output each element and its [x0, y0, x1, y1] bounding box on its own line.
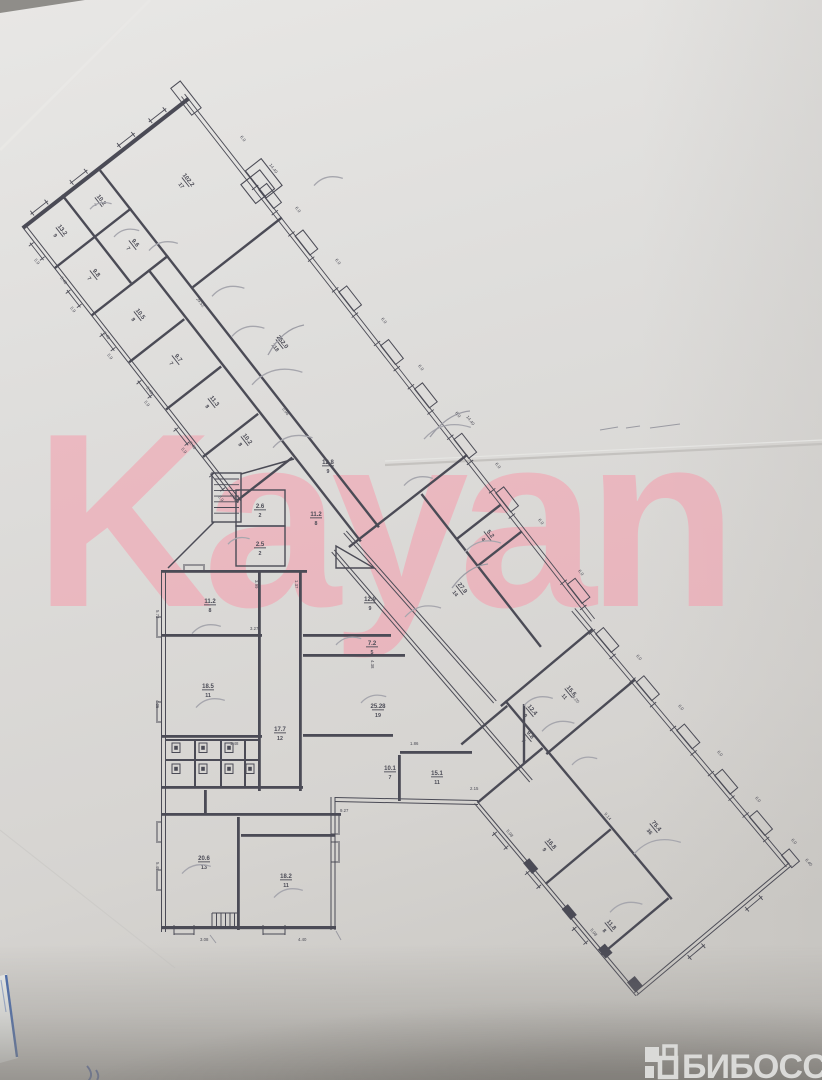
svg-text:1.86: 1.86	[410, 741, 419, 746]
svg-text:12: 12	[277, 736, 283, 742]
svg-text:17.7: 17.7	[274, 727, 286, 733]
svg-text:8: 8	[315, 521, 318, 527]
svg-text:1.37: 1.37	[294, 580, 299, 589]
svg-text:9: 9	[369, 606, 372, 612]
svg-text:11.2: 11.2	[310, 512, 322, 518]
svg-text:5.73: 5.73	[155, 610, 160, 619]
svg-text:Kayan: Kayan	[34, 381, 738, 659]
svg-text:1.48: 1.48	[230, 741, 239, 746]
svg-text:4.38: 4.38	[370, 660, 375, 669]
svg-text:9: 9	[327, 469, 330, 475]
svg-text:2: 2	[259, 513, 262, 519]
svg-text:2.15: 2.15	[470, 786, 479, 791]
svg-text:5: 5	[371, 650, 374, 656]
svg-text:2: 2	[259, 551, 262, 557]
svg-text:5.48: 5.48	[155, 862, 160, 871]
svg-text:3.27: 3.27	[250, 626, 259, 631]
svg-text:9.27: 9.27	[340, 808, 349, 813]
svg-text:11: 11	[205, 693, 211, 699]
svg-text:11: 11	[283, 883, 289, 889]
svg-text:19: 19	[375, 713, 381, 719]
svg-text:4.05: 4.05	[155, 700, 160, 709]
svg-text:10.1: 10.1	[384, 766, 396, 772]
svg-text:18.2: 18.2	[280, 874, 292, 880]
svg-text:11: 11	[434, 780, 440, 786]
svg-text:2.5: 2.5	[256, 542, 265, 548]
svg-text:БИБОСС: БИБОСС	[682, 1048, 822, 1080]
svg-text:18.5: 18.5	[202, 684, 214, 690]
svg-text:13: 13	[201, 865, 207, 871]
svg-text:7: 7	[389, 775, 392, 781]
svg-text:12.9: 12.9	[364, 597, 376, 603]
svg-text:2.6: 2.6	[256, 504, 265, 510]
svg-text:7.2: 7.2	[368, 641, 377, 647]
svg-text:15.1: 15.1	[431, 771, 443, 777]
svg-text:3.99: 3.99	[254, 580, 259, 589]
svg-text:25.28: 25.28	[370, 704, 386, 710]
svg-text:8: 8	[209, 608, 212, 614]
svg-text:20.6: 20.6	[198, 856, 210, 862]
svg-text:11.2: 11.2	[204, 599, 216, 605]
svg-text:12.8: 12.8	[322, 460, 334, 466]
